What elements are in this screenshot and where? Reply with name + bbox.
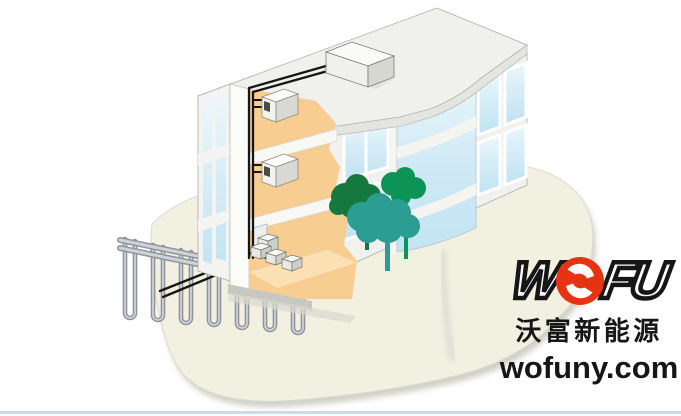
wofu-logo: W FU 沃富新能源 wofuny.com: [497, 254, 681, 386]
left-wall: [198, 84, 230, 281]
company-chinese-name: 沃富新能源: [497, 311, 681, 348]
cut-edge: [230, 84, 249, 300]
company-website: wofuny.com: [497, 350, 681, 386]
wordmark-fu: FU: [598, 254, 671, 308]
wofu-o-swirl-icon: [555, 256, 605, 306]
wofu-wordmark: W FU: [492, 254, 681, 308]
page: W FU 沃富新能源 wofuny.com: [0, 0, 681, 416]
bottom-rule: [0, 411, 681, 414]
